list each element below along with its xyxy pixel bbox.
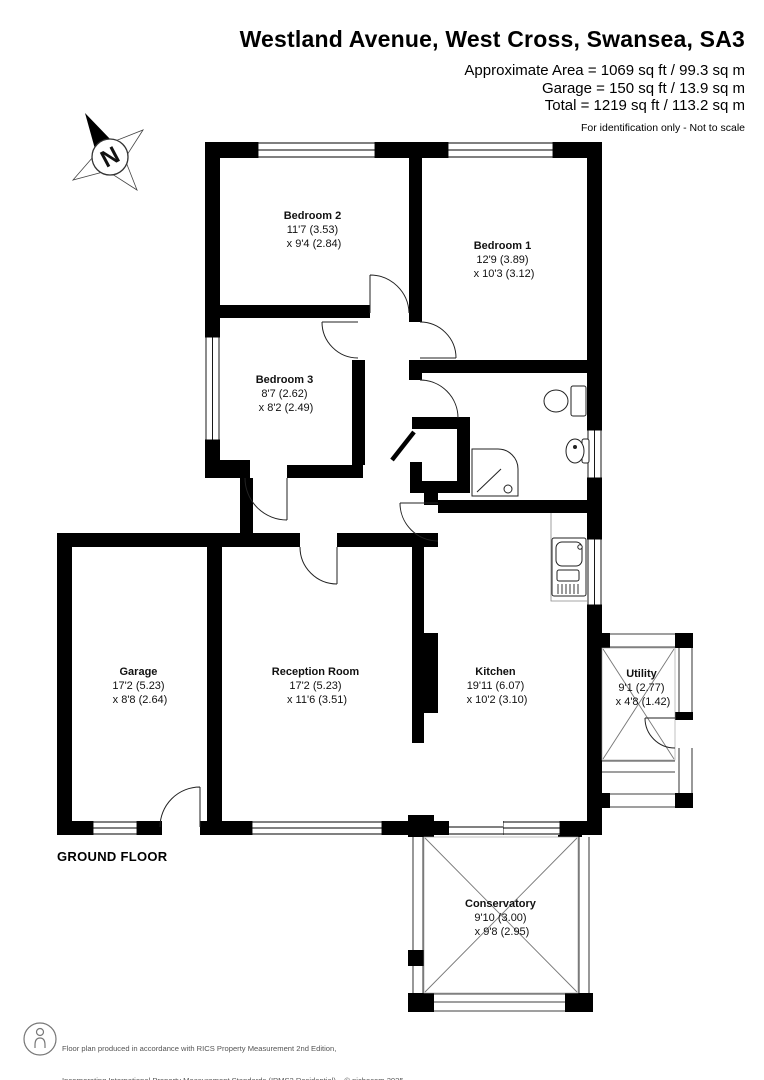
conservatory-threshold <box>449 821 503 835</box>
room-label-bedroom1: Bedroom 1 12'9 (3.89) x 10'3 (3.12) <box>474 240 535 280</box>
floorplan-drawing: N Bedroom 2 11'7 (3.53) x 9'4 (2.84) Bed… <box>0 0 764 1080</box>
room-label-bedroom2: Bedroom 2 11'7 (3.53) x 9'4 (2.84) <box>284 210 345 250</box>
window-bedroom2 <box>258 142 375 158</box>
nichecom-logo-icon <box>24 1023 56 1055</box>
door-bathroom <box>420 380 458 418</box>
bathroom-fixtures <box>472 386 589 496</box>
room-label-kitchen: Kitchen 19'11 (6.07) x 10'2 (3.10) <box>467 666 528 706</box>
kitchen-sink-icon <box>552 538 586 596</box>
door-bedroom2 <box>370 275 409 313</box>
door-bedroom3 <box>322 322 358 358</box>
basin-icon <box>566 439 589 463</box>
kitchen-fixtures <box>551 513 587 601</box>
room-label-reception: Reception Room 17'2 (5.23) x 11'6 (3.51) <box>272 666 362 706</box>
ground-floor-label: GROUND FLOOR <box>57 849 167 864</box>
room-label-conservatory: Conservatory 9'10 (3.00) x 9'8 (2.95) <box>465 898 539 938</box>
window-kitchen-rear <box>503 821 560 835</box>
footer-line-2: Incorporating International Property Mea… <box>62 1076 406 1080</box>
footer-line-1: Floor plan produced in accordance with R… <box>62 1044 406 1055</box>
room-label-garage: Garage 17'2 (5.23) x 8'8 (2.64) <box>112 666 167 706</box>
compass: N <box>73 113 143 190</box>
door-reception <box>300 547 337 584</box>
window-bedroom3 <box>205 337 220 440</box>
room-label-bedroom3: Bedroom 3 8'7 (2.62) x 8'2 (2.49) <box>256 374 317 414</box>
footer: Floor plan produced in accordance with R… <box>62 1022 406 1080</box>
window-reception <box>252 821 382 835</box>
door-bedroom1 <box>420 322 456 358</box>
toilet-icon <box>544 386 586 416</box>
shower-icon <box>472 449 518 496</box>
window-kitchen <box>587 539 602 605</box>
window-bedroom1 <box>448 142 553 158</box>
floorplan-page: Westland Avenue, West Cross, Swansea, SA… <box>0 0 764 1080</box>
door-cupboard <box>392 432 414 460</box>
door-utility <box>645 718 675 748</box>
door-garage <box>160 787 200 827</box>
room-label-utility: Utility 9'1 (2.77) x 4'8 (1.42) <box>616 668 671 708</box>
window-garage <box>93 821 137 835</box>
